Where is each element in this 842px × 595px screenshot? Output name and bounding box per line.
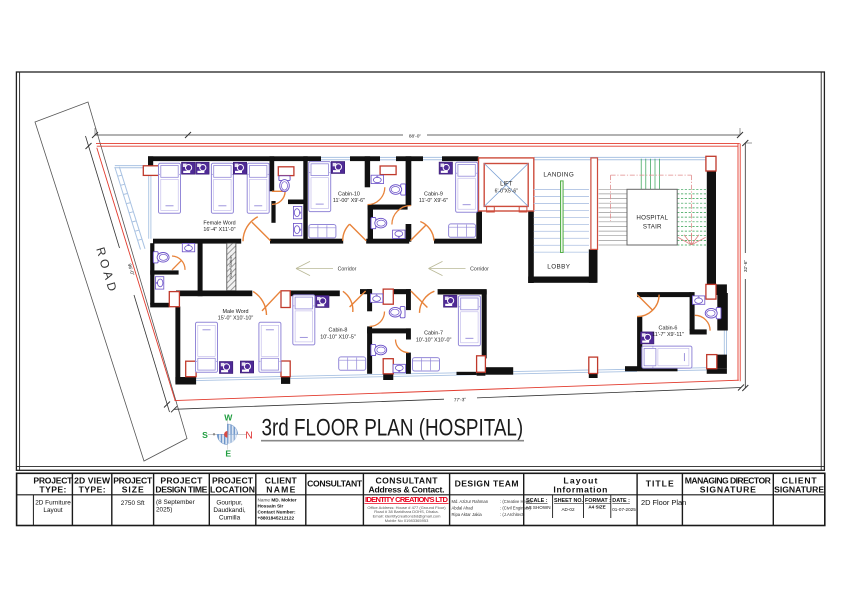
svg-text:DATE :: DATE :: [612, 498, 630, 504]
svg-text:11'-7" X9'-11": 11'-7" X9'-11": [652, 332, 684, 338]
svg-text:Address & Contact.: Address & Contact.: [369, 485, 445, 495]
svg-text:(8 September: (8 September: [156, 499, 196, 506]
svg-text:Female Word: Female Word: [203, 220, 235, 226]
svg-text:10'-10" X10'-5": 10'-10" X10'-5": [320, 334, 356, 340]
svg-text:DESIGN TEAM: DESIGN TEAM: [455, 479, 519, 489]
svg-text:Cabin-9: Cabin-9: [424, 192, 443, 198]
svg-text:Name MD. Mokter: Name MD. Mokter: [258, 498, 297, 503]
svg-text:: (J.Architect): : (J.Architect): [500, 512, 525, 517]
svg-text:Ripa Aktar Jakia: Ripa Aktar Jakia: [452, 512, 483, 517]
svg-text:32'-6": 32'-6": [743, 260, 749, 273]
svg-text:DESIGN TIME: DESIGN TIME: [155, 485, 207, 495]
svg-text:Gouripur,: Gouripur,: [216, 500, 243, 507]
svg-text:HOSPITAL: HOSPITAL: [636, 215, 668, 222]
svg-text:SIGNATURE: SIGNATURE: [700, 485, 756, 495]
svg-text:SCALE :: SCALE :: [526, 498, 548, 504]
svg-text:S: S: [202, 430, 208, 440]
svg-text:2D Furniture: 2D Furniture: [35, 500, 71, 507]
svg-text:11'-0" X9'-6": 11'-0" X9'-6": [419, 198, 448, 204]
svg-text:CONSULTANT: CONSULTANT: [307, 479, 363, 489]
svg-text:TYPE:: TYPE:: [39, 485, 66, 495]
svg-text:3rd FLOOR PLAN (HOSPITAL): 3rd FLOOR PLAN (HOSPITAL): [262, 413, 524, 441]
svg-text:Daudkandi,: Daudkandi,: [213, 507, 246, 514]
svg-text:SHEET NO.: SHEET NO.: [554, 498, 584, 504]
svg-text:Contact Number:: Contact Number:: [258, 510, 296, 515]
svg-text:77'-3": 77'-3": [454, 397, 467, 403]
svg-text:2750 Sft: 2750 Sft: [121, 500, 145, 507]
svg-text:Nurse Station: Nurse Station: [229, 255, 233, 278]
svg-text:NAME: NAME: [266, 485, 295, 495]
svg-text:W: W: [224, 412, 233, 422]
svg-text:88'-0": 88'-0": [409, 133, 422, 139]
svg-text:AS SHOWN: AS SHOWN: [526, 505, 551, 510]
svg-text:Corridor: Corridor: [338, 267, 357, 273]
svg-text:15'-0" X10'-10": 15'-0" X10'-10": [218, 316, 254, 322]
svg-text:+8801845212122: +8801845212122: [258, 516, 295, 521]
svg-text:Cabin-10: Cabin-10: [338, 192, 360, 198]
svg-text:Hossain Sir: Hossain Sir: [258, 504, 284, 509]
svg-text:STAIR: STAIR: [643, 224, 662, 231]
svg-text:Male Word: Male Word: [223, 309, 249, 315]
svg-text:TITLE: TITLE: [646, 479, 674, 489]
svg-text:Md. Azizur Rahman: Md. Azizur Rahman: [452, 499, 489, 504]
svg-text:Cabin-7: Cabin-7: [424, 331, 443, 337]
svg-text:TYPE:: TYPE:: [79, 485, 106, 495]
svg-text:E: E: [225, 449, 231, 459]
svg-text:2D Floor Plan: 2D Floor Plan: [641, 498, 686, 507]
svg-text:LIFT: LIFT: [500, 182, 513, 188]
svg-text:AD-02: AD-02: [561, 507, 574, 512]
svg-text:SIGNATURE: SIGNATURE: [774, 485, 824, 495]
svg-text:Information: Information: [553, 485, 607, 495]
svg-text:FORMAT :: FORMAT :: [585, 498, 611, 504]
svg-text:LOBBY: LOBBY: [547, 263, 570, 270]
svg-text:N: N: [245, 429, 253, 441]
svg-text:Cabin-8: Cabin-8: [329, 328, 348, 334]
svg-text:LOCATION: LOCATION: [210, 485, 255, 495]
svg-text:A4 SIZE: A4 SIZE: [588, 505, 605, 510]
svg-text:Cumilla: Cumilla: [219, 515, 241, 522]
svg-text:2025): 2025): [156, 507, 172, 514]
svg-text:Corridor: Corridor: [470, 267, 489, 273]
svg-text:10'-10" X10'-0": 10'-10" X10'-0": [416, 337, 452, 343]
svg-text:16'-4" X11'-0": 16'-4" X11'-0": [203, 227, 235, 233]
svg-text:IDENTITY CREATION'S LTD: IDENTITY CREATION'S LTD: [365, 495, 449, 504]
svg-text:6'-0"X5'-6": 6'-0"X5'-6": [495, 189, 518, 195]
svg-text:Abdal Ahad: Abdal Ahad: [452, 506, 474, 511]
svg-text:SIZE: SIZE: [122, 485, 144, 495]
svg-text:Layout: Layout: [43, 507, 62, 514]
svg-text:01-07-2025: 01-07-2025: [612, 507, 636, 512]
svg-text:LANDING: LANDING: [543, 172, 574, 179]
svg-text:11'-00" X9'-6": 11'-00" X9'-6": [333, 198, 365, 204]
svg-text:Mobile No 01983365953: Mobile No 01983365953: [385, 518, 429, 523]
svg-text:Cabin-6: Cabin-6: [659, 326, 678, 332]
